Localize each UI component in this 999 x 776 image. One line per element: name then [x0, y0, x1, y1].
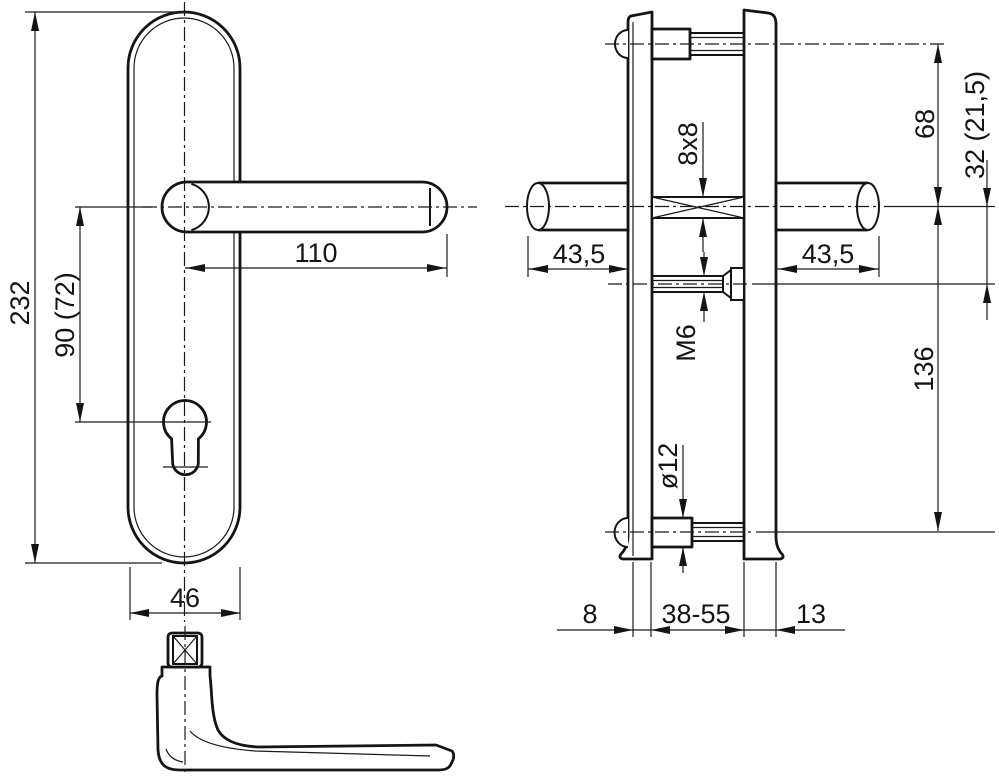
arrowhead: [934, 512, 942, 531]
arrowhead: [679, 499, 687, 518]
dim-text-435-right: 43,5: [802, 239, 855, 269]
arrowhead: [614, 626, 633, 634]
dim-text-232: 232: [5, 280, 35, 325]
arrowhead: [76, 403, 84, 422]
arrowhead: [776, 626, 795, 634]
arrowhead: [700, 292, 708, 311]
dim-text-13: 13: [796, 599, 826, 629]
arrowhead: [427, 264, 446, 272]
dim-text-8: 8: [582, 599, 597, 629]
dim-text-110: 110: [294, 238, 337, 268]
dimension-top-offset-68: 68: [910, 44, 942, 531]
dimension-bottom-span-136: 136: [756, 207, 995, 533]
arrowhead: [859, 265, 878, 273]
arrowhead: [934, 187, 942, 206]
arrowhead: [679, 547, 687, 566]
arrowhead: [130, 609, 149, 617]
arrowhead: [983, 284, 991, 303]
dimension-plate-width: 46: [130, 567, 240, 620]
arrowhead: [76, 207, 84, 226]
dim-text-8x8: 8x8: [673, 122, 703, 166]
inner-plate-profile: [620, 12, 652, 559]
dimensions-bottom-row: 8 38-55 13: [557, 562, 845, 637]
arrowhead: [934, 207, 942, 226]
arrowhead: [221, 609, 240, 617]
dim-text-m6: M6: [671, 324, 701, 362]
dimension-neck-left: 43,5: [528, 236, 629, 277]
dim-text-90-72: 90 (72): [50, 272, 80, 358]
dim-text-136: 136: [909, 346, 939, 391]
arrowhead: [31, 544, 39, 563]
centerlines: [143, 2, 948, 776]
dim-text-68: 68: [910, 109, 940, 139]
technical-drawing-page: 232 90 (72) 110 46 43,5 43,5: [0, 0, 999, 776]
dimension-spindle-8x8: 8x8: [673, 122, 707, 252]
dimension-neck-right: 43,5: [777, 236, 879, 277]
spindle-bar: [652, 197, 744, 218]
arrowhead: [934, 44, 942, 63]
arrowhead: [529, 265, 548, 273]
arrowhead: [700, 257, 708, 276]
arrowhead: [983, 188, 991, 207]
arrowhead: [31, 12, 39, 31]
arrowhead: [609, 265, 628, 273]
arrowhead: [699, 218, 707, 237]
dim-text-435-left: 43,5: [553, 239, 606, 269]
dimension-screw-m6: M6: [671, 252, 708, 362]
dim-text-38-55: 38-55: [661, 599, 730, 629]
dimension-bolt-dia: ø12: [653, 443, 687, 573]
lever-detail-view: [157, 633, 454, 770]
lever-body-outline: [157, 667, 454, 770]
dim-text-o12: ø12: [653, 443, 683, 490]
arrowhead: [699, 178, 707, 197]
dim-text-32-215: 32 (21,5): [960, 71, 990, 179]
dim-text-46: 46: [170, 583, 200, 613]
arrowhead: [778, 265, 797, 273]
door-handle-drawing: 232 90 (72) 110 46 43,5 43,5: [0, 0, 999, 776]
